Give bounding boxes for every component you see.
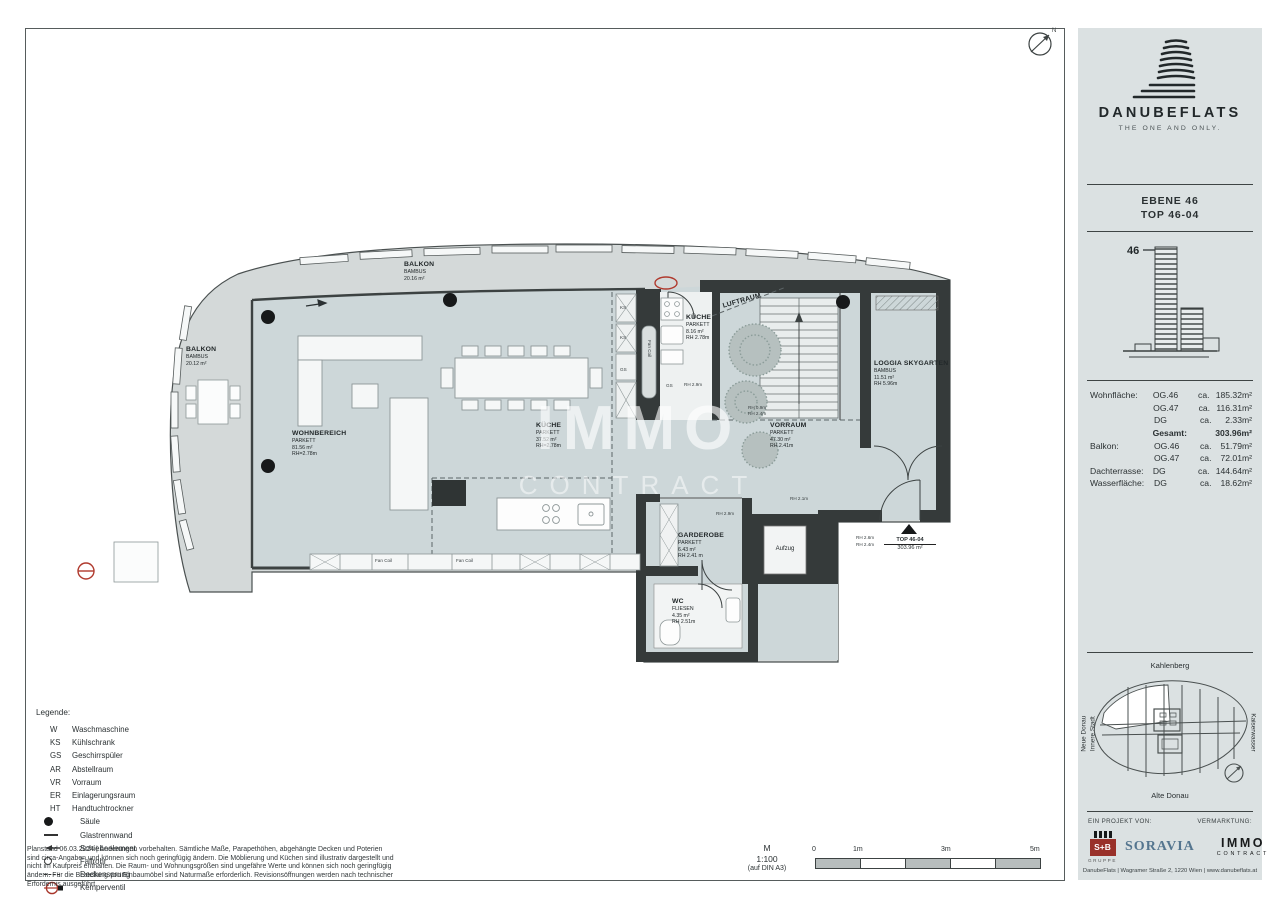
rh-annotation: RH 2.1m (790, 497, 808, 502)
entrance-top-label: TOP 46-04 (884, 537, 936, 545)
label-wc: WC FLIESEN 4.35 m² RH 2.51m (672, 598, 695, 626)
rh-annotation: RH 2.9m (684, 383, 702, 388)
appliance-label-gs: GS (666, 384, 673, 389)
fancoil-label: Fan Coil (646, 340, 651, 357)
legend-item: Handtuchtrockner (72, 804, 134, 813)
label-kueche-top: KÜCHE PARKETT 8.16 m² RH 2.78m (686, 314, 711, 342)
scale-tick: 3m (941, 846, 951, 853)
brand-tagline: THE ONE AND ONLY. (1119, 126, 1222, 133)
rh-annotation: RH 2.9m (716, 512, 734, 517)
footer-address: DanubeFlats | Wagramer Straße 2, 1220 Wi… (1078, 868, 1262, 874)
scale-ratio: 1:100 (744, 854, 790, 864)
areas-block: 46 Wohnfläche:OG.46ca.185.32m² OG.47ca.1… (1078, 232, 1262, 652)
project-by-label: EIN PROJEKT VON: (1088, 818, 1152, 825)
legend-item: Abstellraum (72, 765, 113, 774)
entrance-area-label: 303.96 m² (884, 545, 936, 552)
legend-item: Vorraum (72, 778, 101, 787)
title-block-panel: DANUBEFLATS THE ONE AND ONLY. EBENE 46 T… (1078, 28, 1262, 880)
watermark-immo: IMMO (494, 398, 784, 460)
legend-item: Geschirrspüler (72, 751, 123, 760)
label-balkon-top: BALKON BAMBUS 20.16 m² (404, 261, 434, 282)
soravia-logo: SORAVIA (1125, 840, 1195, 854)
label-garderobe: GARDEROBE PARKETT 6.43 m² RH 2.41 m (678, 532, 724, 560)
footer-block: EIN PROJEKT VON: VERMARKTUNG: S+B GRUPPE… (1078, 812, 1262, 880)
danubeflats-logo-icon (1110, 38, 1230, 100)
keyplan-map (1088, 673, 1252, 789)
brand-name: DANUBEFLATS (1099, 106, 1242, 121)
legend-item: Einlagerungsraum (72, 791, 135, 800)
scale-tick: 1m (853, 846, 863, 853)
fancoil-label: Fan Coil (456, 559, 473, 564)
keyplan-compass-icon (1225, 764, 1243, 782)
brand-block: DANUBEFLATS THE ONE AND ONLY. (1078, 28, 1262, 184)
legend-item: Waschmaschine (72, 725, 129, 734)
scale-m-label: M (744, 843, 790, 853)
rh-annotation: RH 2.4m (856, 543, 874, 548)
column-icon (44, 817, 53, 826)
disclaimer-text: Planstand 06.03.2024 | Änderungen vorbeh… (27, 846, 395, 889)
marketing-label: VERMARKTUNG: (1197, 818, 1252, 825)
legend-title: Legende: (36, 708, 236, 717)
area-table: Wohnfläche:OG.46ca.185.32m² OG.47ca.116.… (1078, 381, 1262, 490)
glass-wall-icon (44, 834, 58, 836)
label-balkon-left: BALKON BAMBUS 20.12 m² (186, 346, 216, 367)
scale-paper-note: (auf DIN A3) (738, 865, 796, 872)
entrance-triangle (901, 524, 917, 534)
watermark-contract: CONTRACT (494, 472, 784, 498)
fancoil-label: Fan Coil (375, 559, 392, 564)
label-loggia: LOGGIA SKYGARTEN BAMBUS 11.51 m² RH 5.96… (874, 360, 948, 388)
floorplan-sheet: N BALKON BAMBUS 20.12 m² BALKON BAMBUS 2… (0, 0, 1280, 905)
appliance-label-gs: GS (620, 368, 627, 373)
immo-contract-logo: IMMO CONTRACT (1217, 837, 1269, 857)
svg-text:46: 46 (1127, 245, 1139, 257)
building-elevation-icon: 46 (1105, 238, 1235, 374)
scale-bar (815, 858, 1041, 869)
label-wohnbereich: WOHNBEREICH PARKETT 81.56 m² RH=2.78m (292, 430, 346, 458)
keyplan-block: Kahlenberg Neue DonauInnere Stadt Kaiser… (1078, 653, 1262, 811)
sb-gruppe-logo: S+B GRUPPE (1088, 831, 1117, 863)
unit-block: EBENE 46 TOP 46-04 (1078, 185, 1262, 231)
rh-annotation: RH 2.6m (856, 536, 874, 541)
level-label: EBENE 46 (1141, 196, 1198, 207)
scale-tick: 0 (812, 846, 816, 853)
legend-item: Kühlschrank (72, 738, 115, 747)
keyplan-label-alte-donau: Alte Donau (1078, 791, 1262, 800)
appliance-label-ks: KS (620, 336, 626, 341)
label-aufzug: Aufzug (764, 546, 806, 554)
scale-tick: 5m (1030, 846, 1040, 853)
appliance-label-ks: KS (620, 306, 626, 311)
top-label: TOP 46-04 (1141, 210, 1199, 221)
keyplan-label-kahlenberg: Kahlenberg (1078, 661, 1262, 670)
